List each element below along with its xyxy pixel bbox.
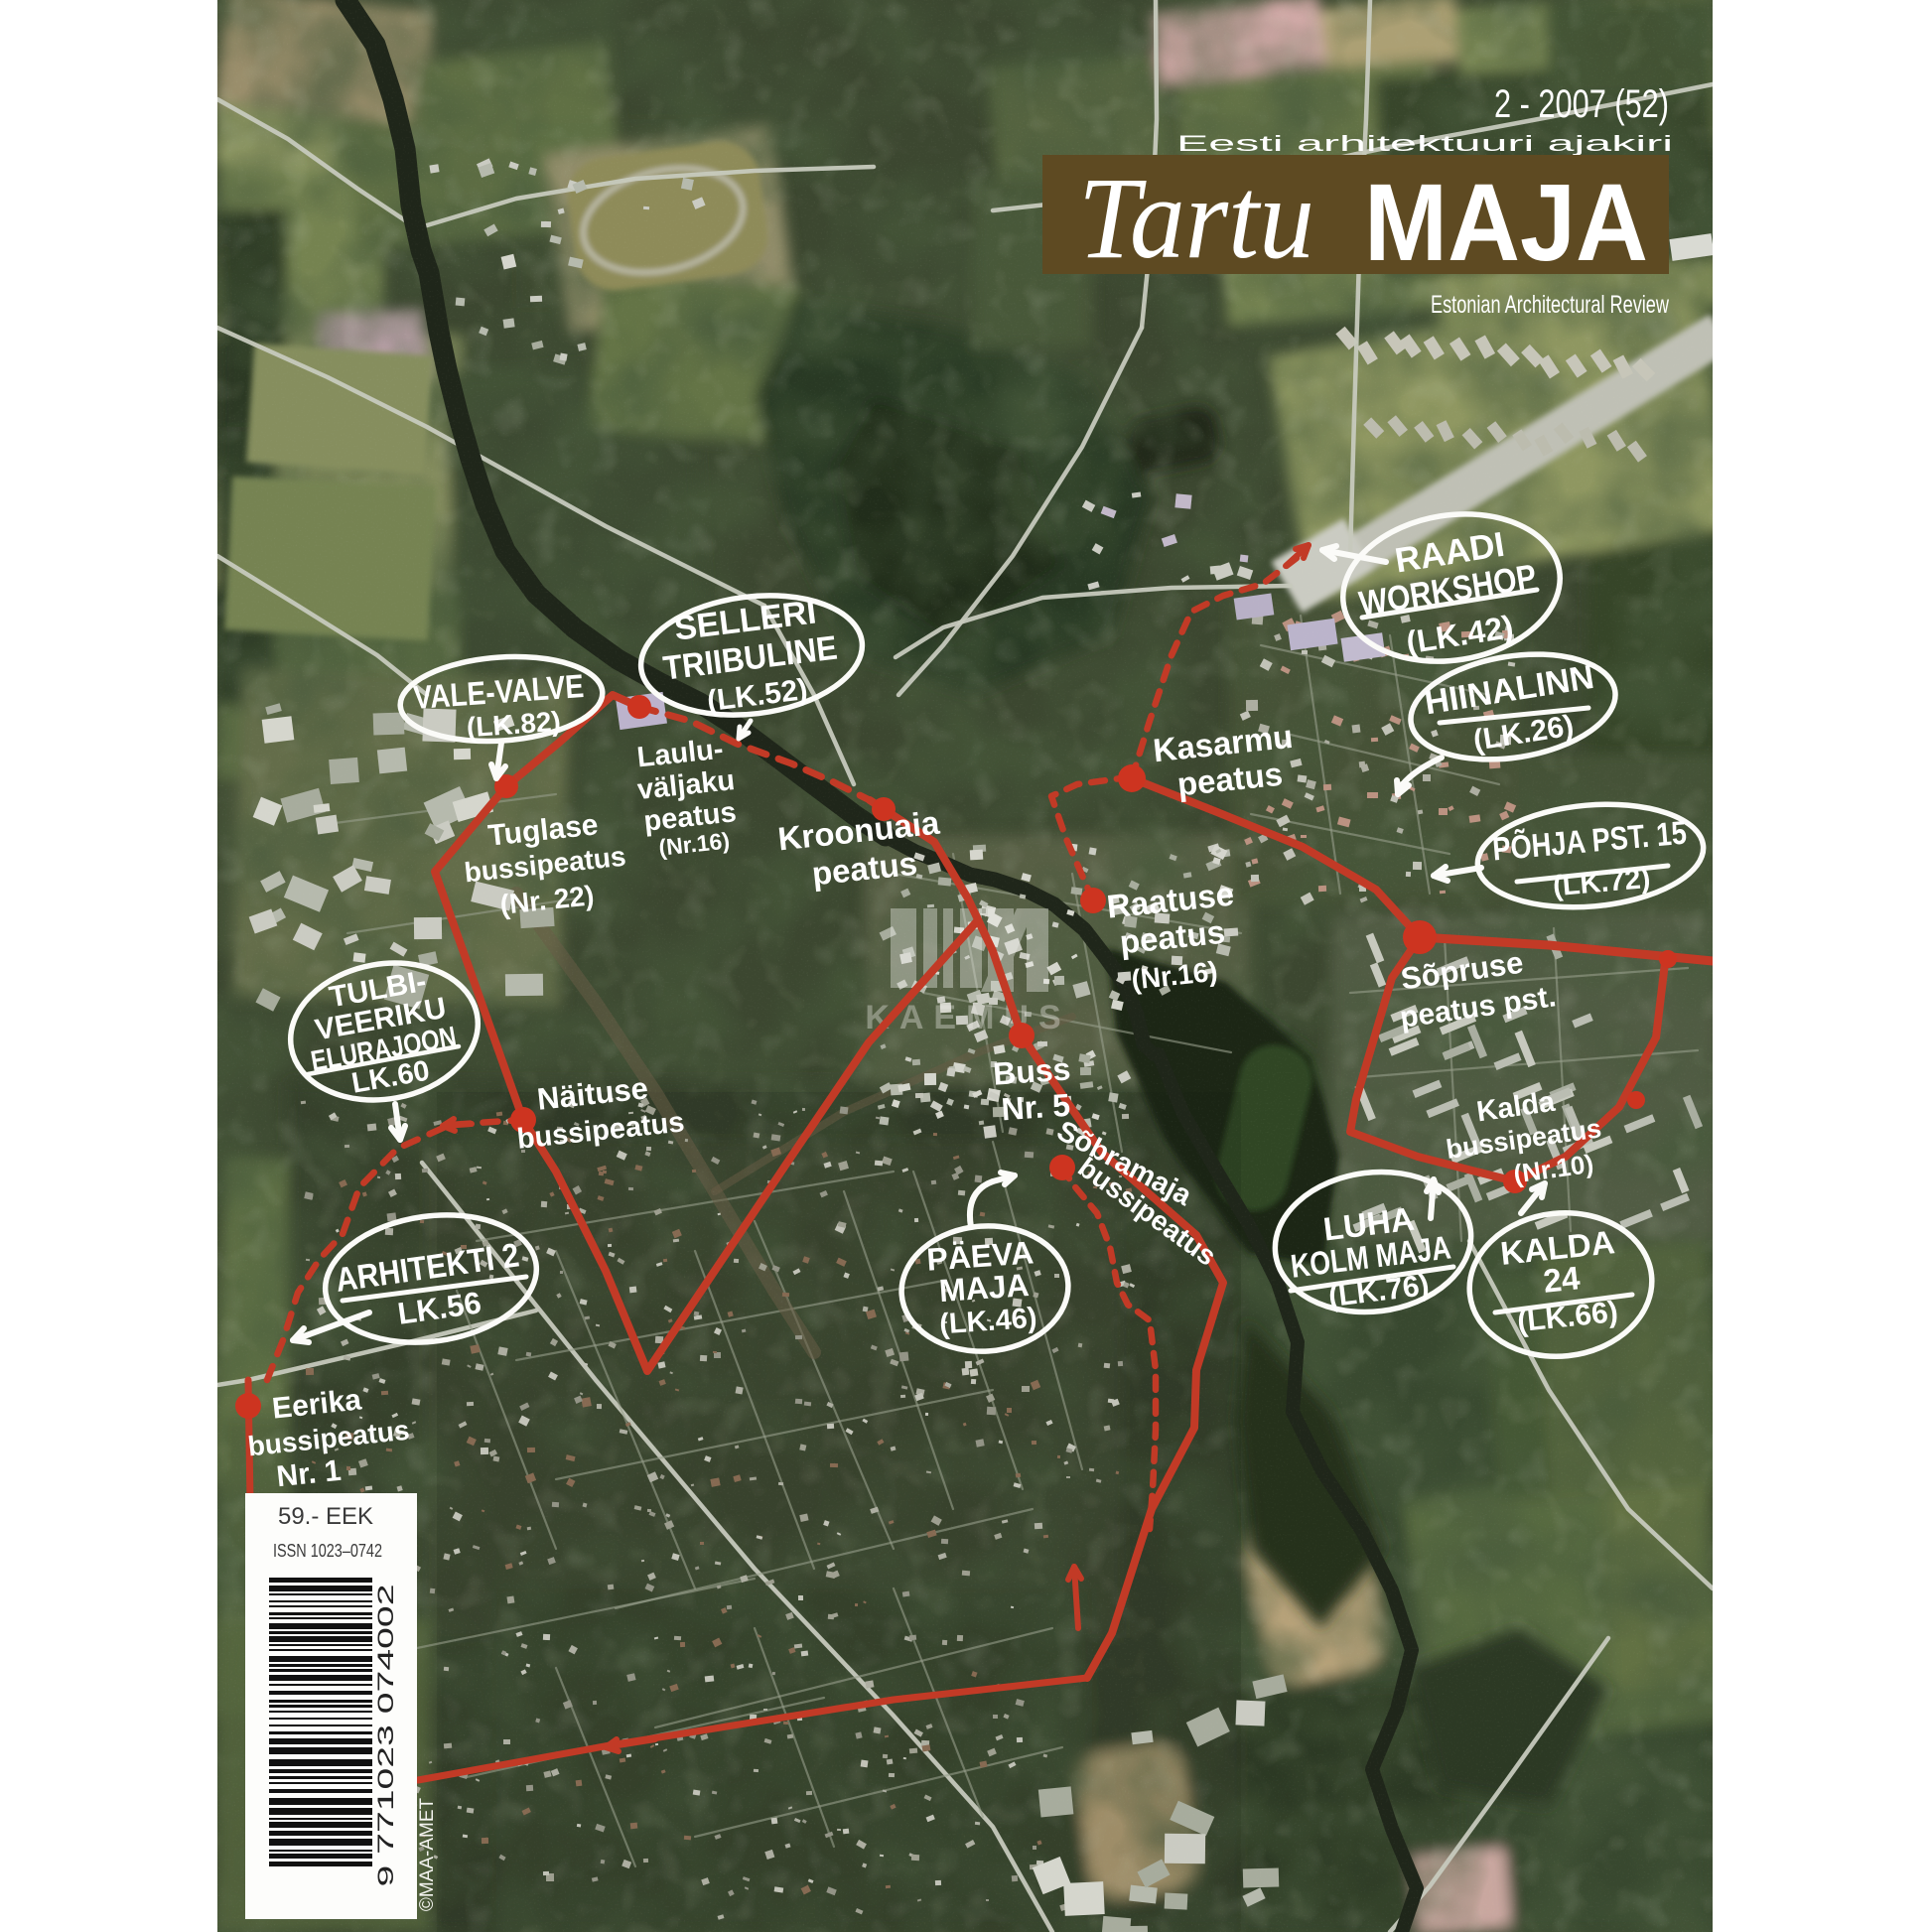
- svg-text:24: 24: [1542, 1259, 1583, 1300]
- svg-text:Tartu: Tartu: [1078, 153, 1314, 283]
- svg-text:Nr. 1: Nr. 1: [275, 1454, 343, 1494]
- svg-text:2 - 2007 (52): 2 - 2007 (52): [1494, 82, 1669, 126]
- svg-text:Estonian Architectural Review: Estonian Architectural Review: [1431, 291, 1670, 319]
- svg-text:Buss: Buss: [992, 1050, 1072, 1091]
- svg-text:ISSN 1023–0742: ISSN 1023–0742: [273, 1541, 382, 1561]
- svg-text:9 771023 074002: 9 771023 074002: [373, 1585, 398, 1887]
- svg-text:MAJA: MAJA: [1364, 162, 1648, 284]
- svg-text:(LK.46): (LK.46): [938, 1303, 1037, 1341]
- svg-text:Nr. 5: Nr. 5: [1000, 1087, 1071, 1128]
- svg-text:MAJA: MAJA: [938, 1267, 1031, 1309]
- svg-text:©MAA-AMET: ©MAA-AMET: [417, 1797, 438, 1911]
- svg-text:(LK.82): (LK.82): [466, 706, 562, 744]
- svg-text:59.- EEK: 59.- EEK: [278, 1503, 373, 1530]
